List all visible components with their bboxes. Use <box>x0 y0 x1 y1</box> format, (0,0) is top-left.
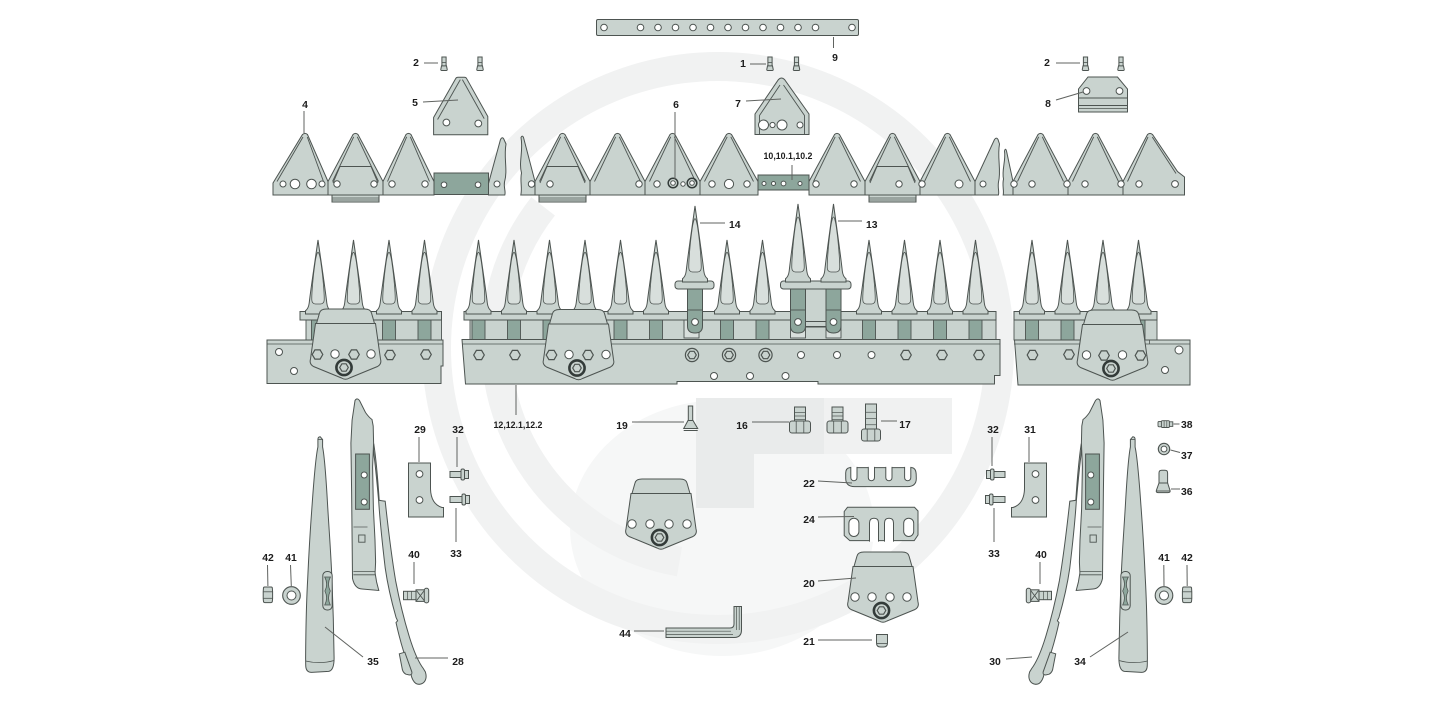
svg-text:32: 32 <box>452 425 464 436</box>
svg-text:36: 36 <box>1181 487 1193 498</box>
svg-text:34: 34 <box>1074 657 1086 668</box>
svg-text:35: 35 <box>367 657 379 668</box>
svg-text:37: 37 <box>1181 451 1193 462</box>
svg-text:9: 9 <box>832 53 838 64</box>
svg-text:6: 6 <box>673 100 679 111</box>
svg-text:44: 44 <box>619 629 631 640</box>
svg-text:33: 33 <box>450 549 462 560</box>
svg-text:41: 41 <box>1158 553 1170 564</box>
svg-text:14: 14 <box>729 220 741 231</box>
svg-text:38: 38 <box>1181 420 1193 431</box>
svg-text:2: 2 <box>413 58 419 69</box>
svg-text:2: 2 <box>1044 58 1050 69</box>
svg-text:19: 19 <box>616 421 628 432</box>
svg-text:30: 30 <box>989 657 1001 668</box>
svg-text:32: 32 <box>987 425 999 436</box>
svg-text:33: 33 <box>988 549 1000 560</box>
svg-text:31: 31 <box>1024 425 1036 436</box>
svg-text:29: 29 <box>414 425 426 436</box>
svg-text:16: 16 <box>736 421 748 432</box>
svg-text:5: 5 <box>412 98 418 109</box>
svg-text:22: 22 <box>803 479 815 490</box>
svg-text:1: 1 <box>740 59 746 70</box>
svg-text:24: 24 <box>803 515 815 526</box>
svg-text:40: 40 <box>1035 550 1047 561</box>
svg-text:28: 28 <box>452 657 464 668</box>
svg-text:8: 8 <box>1045 99 1051 110</box>
svg-text:20: 20 <box>803 579 815 590</box>
svg-text:40: 40 <box>408 550 420 561</box>
svg-text:42: 42 <box>1181 553 1193 564</box>
svg-text:7: 7 <box>735 99 741 110</box>
svg-text:13: 13 <box>866 220 878 231</box>
svg-text:10,10.1,10.2: 10,10.1,10.2 <box>764 151 813 161</box>
svg-text:17: 17 <box>899 420 911 431</box>
svg-text:41: 41 <box>285 553 297 564</box>
svg-text:4: 4 <box>302 100 308 111</box>
svg-text:21: 21 <box>803 637 815 648</box>
svg-text:12,12.1,12.2: 12,12.1,12.2 <box>494 420 543 430</box>
svg-text:42: 42 <box>262 553 274 564</box>
